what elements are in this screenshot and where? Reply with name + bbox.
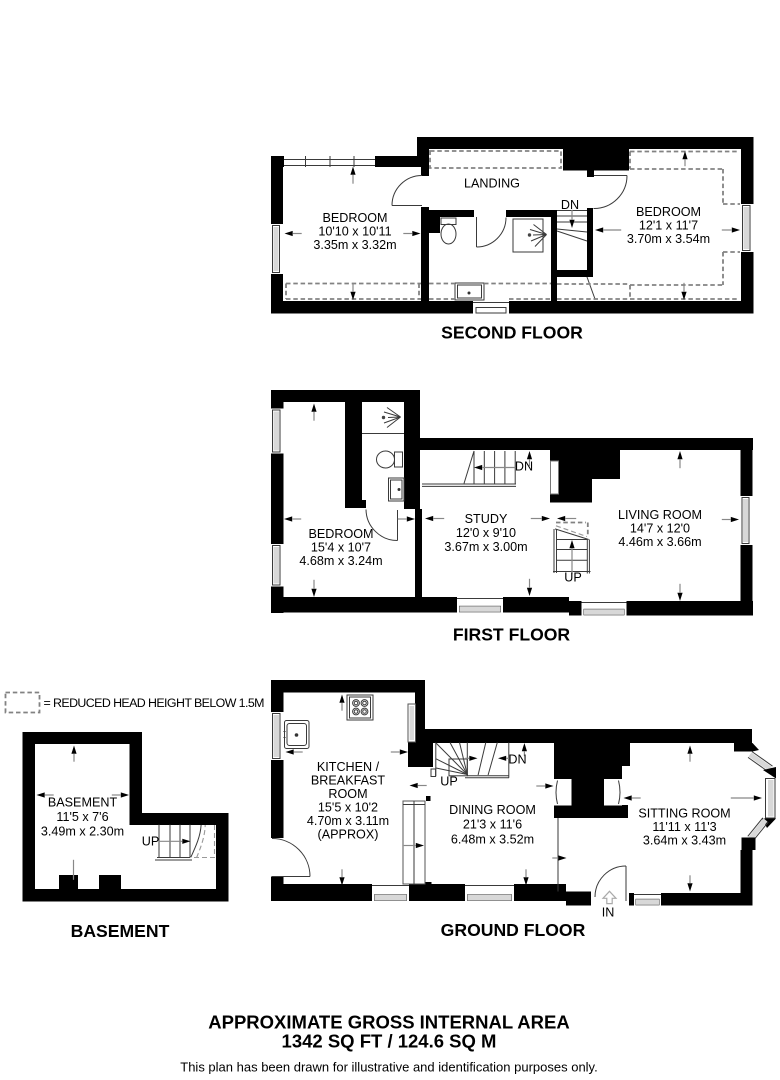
svg-text:LIVING ROOM: LIVING ROOM bbox=[618, 508, 702, 522]
svg-text:UP: UP bbox=[142, 835, 160, 849]
svg-text:DINING ROOM: DINING ROOM bbox=[449, 803, 536, 817]
svg-text:DN: DN bbox=[561, 198, 579, 212]
svg-text:SITTING ROOM: SITTING ROOM bbox=[638, 807, 730, 821]
svg-text:= REDUCED HEAD HEIGHT BELOW 1.: = REDUCED HEAD HEIGHT BELOW 1.5M bbox=[44, 696, 265, 710]
svg-text:11'5 x 7'6: 11'5 x 7'6 bbox=[56, 810, 108, 824]
svg-text:6.48m x 3.52m: 6.48m x 3.52m bbox=[451, 833, 534, 847]
svg-text:LANDING: LANDING bbox=[464, 177, 520, 191]
svg-text:BEDROOM: BEDROOM bbox=[322, 211, 387, 225]
svg-text:STUDY: STUDY bbox=[465, 512, 508, 526]
svg-text:3.49m x 2.30m: 3.49m x 2.30m bbox=[41, 825, 124, 839]
svg-text:This plan has been drawn for i: This plan has been drawn for illustrativ… bbox=[180, 1060, 597, 1075]
svg-text:BEDROOM: BEDROOM bbox=[636, 205, 701, 219]
svg-text:BASEMENT: BASEMENT bbox=[71, 921, 170, 941]
svg-text:(APPROX): (APPROX) bbox=[318, 828, 379, 842]
svg-text:IN: IN bbox=[602, 906, 615, 920]
svg-text:10'10 x 10'11: 10'10 x 10'11 bbox=[318, 225, 391, 239]
svg-text:3.67m x 3.00m: 3.67m x 3.00m bbox=[444, 540, 527, 554]
svg-text:BREAKFAST: BREAKFAST bbox=[311, 774, 385, 788]
svg-text:SECOND FLOOR: SECOND FLOOR bbox=[441, 323, 583, 343]
svg-text:APPROXIMATE GROSS INTERNAL ARE: APPROXIMATE GROSS INTERNAL AREA bbox=[208, 1012, 569, 1033]
svg-text:BASEMENT: BASEMENT bbox=[48, 796, 118, 810]
svg-text:BEDROOM: BEDROOM bbox=[308, 527, 373, 541]
svg-text:12'1 x 11'7: 12'1 x 11'7 bbox=[639, 219, 698, 233]
svg-text:1342 SQ FT / 124.6 SQ M: 1342 SQ FT / 124.6 SQ M bbox=[282, 1031, 497, 1052]
svg-text:DN: DN bbox=[508, 753, 526, 767]
svg-text:DN: DN bbox=[515, 460, 533, 474]
svg-text:15'4 x 10'7: 15'4 x 10'7 bbox=[311, 541, 371, 555]
svg-text:3.70m x 3.54m: 3.70m x 3.54m bbox=[627, 232, 710, 246]
svg-text:3.35m x 3.32m: 3.35m x 3.32m bbox=[313, 238, 396, 252]
svg-text:3.64m x 3.43m: 3.64m x 3.43m bbox=[643, 834, 726, 848]
svg-text:4.70m x 3.11m: 4.70m x 3.11m bbox=[307, 814, 389, 828]
svg-text:14'7 x 12'0: 14'7 x 12'0 bbox=[630, 522, 690, 536]
svg-text:KITCHEN /: KITCHEN / bbox=[317, 760, 380, 774]
svg-text:4.46m x 3.66m: 4.46m x 3.66m bbox=[618, 535, 701, 549]
svg-text:15'5 x 10'2: 15'5 x 10'2 bbox=[318, 801, 378, 815]
svg-text:UP: UP bbox=[440, 775, 458, 789]
svg-text:GROUND FLOOR: GROUND FLOOR bbox=[441, 920, 586, 940]
svg-text:21'3 x 11'6: 21'3 x 11'6 bbox=[463, 818, 522, 832]
svg-text:4.68m x 3.24m: 4.68m x 3.24m bbox=[299, 554, 382, 568]
svg-text:ROOM: ROOM bbox=[328, 787, 367, 801]
svg-text:11'11 x 11'3: 11'11 x 11'3 bbox=[652, 820, 716, 834]
svg-text:FIRST FLOOR: FIRST FLOOR bbox=[453, 625, 571, 645]
svg-text:12'0 x 9'10: 12'0 x 9'10 bbox=[456, 526, 516, 540]
svg-text:UP: UP bbox=[564, 571, 582, 585]
